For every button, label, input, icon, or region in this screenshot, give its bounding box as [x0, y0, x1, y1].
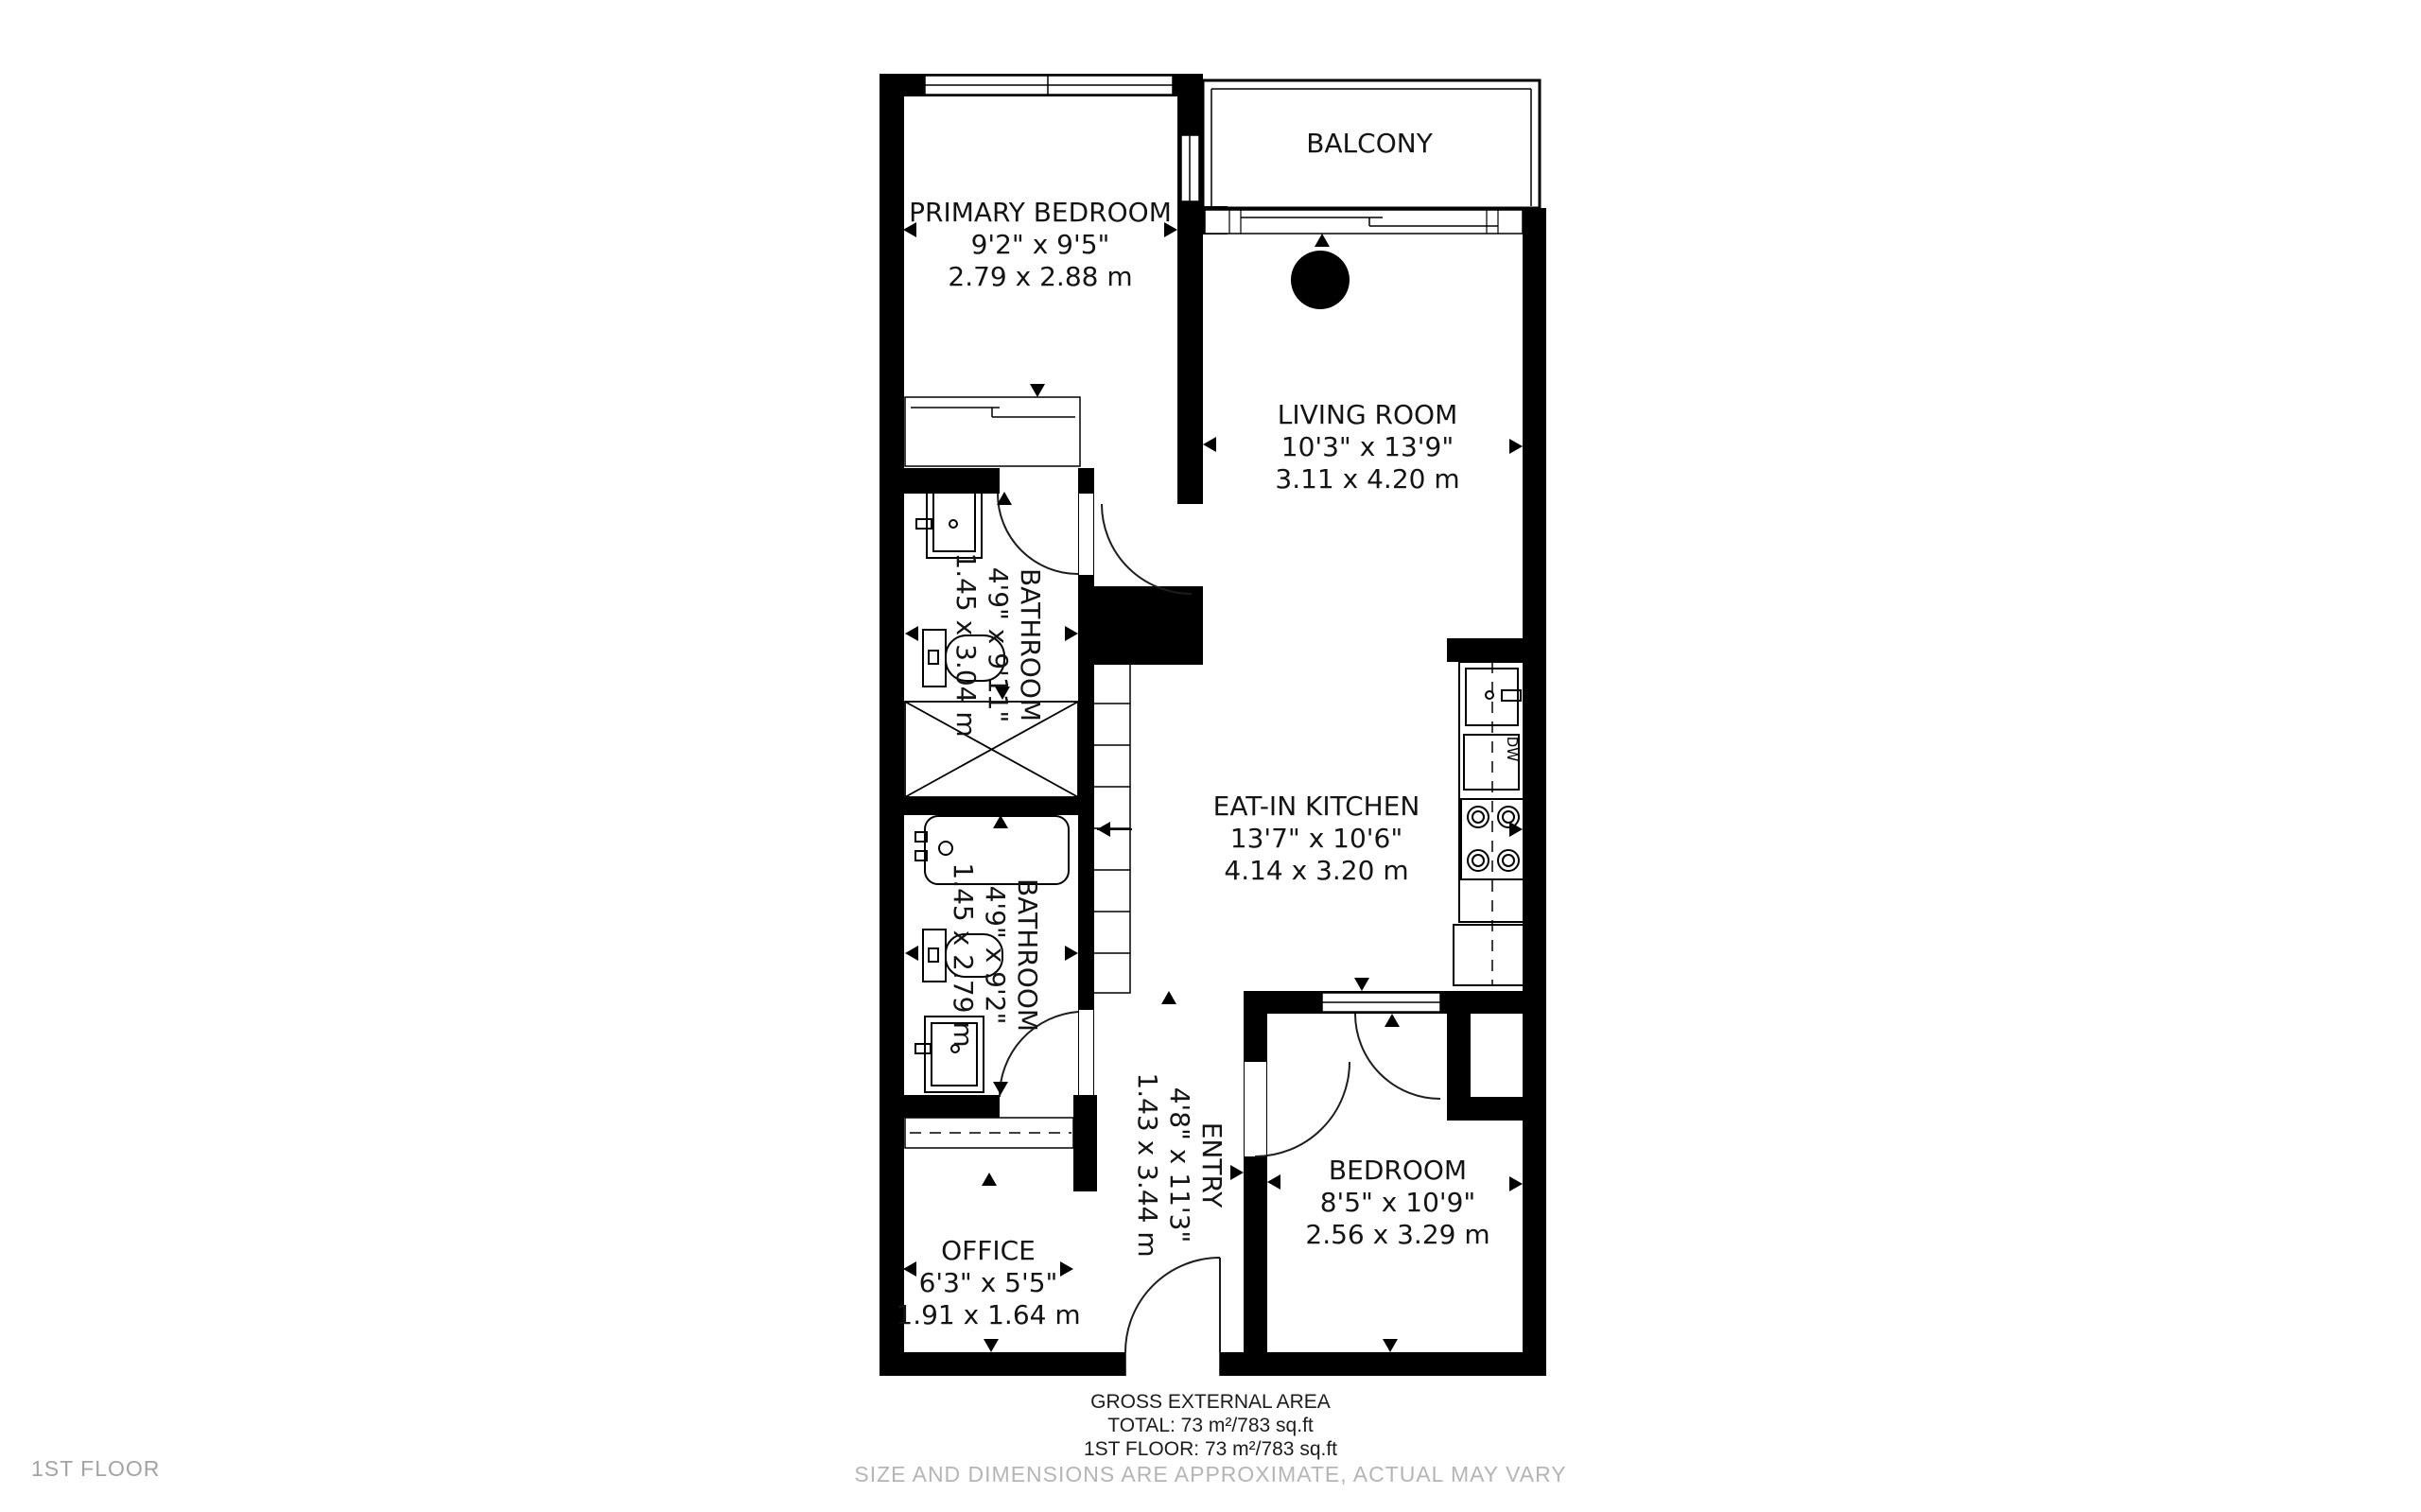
- primary-bedroom-window: [925, 76, 1173, 95]
- room-name: LIVING ROOM: [1275, 399, 1459, 431]
- kitchen-counter: [1454, 662, 1525, 986]
- room-dim-imperial: 13'7" x 10'6": [1213, 823, 1420, 855]
- room-label-entry: ENTRY 4'8" x 11'3" 1.43 x 3.44 m: [1131, 1072, 1228, 1257]
- room-dim-metric: 4.14 x 3.20 m: [1213, 855, 1420, 887]
- area-summary: GROSS EXTERNAL AREA TOTAL: 73 m²/783 sq.…: [854, 1390, 1566, 1488]
- column-icon: [1291, 251, 1350, 309]
- room-dim-imperial: 8'5" x 10'9": [1305, 1187, 1489, 1219]
- room-label-bathroom-1: BATHROOM 4'9" x 9'11" 1.45 x 3.04 m: [949, 552, 1046, 737]
- room-name: ENTRY: [1195, 1072, 1228, 1257]
- room-name: BALCONY: [1306, 128, 1433, 160]
- total-area-line: TOTAL: 73 m²/783 sq.ft: [854, 1414, 1566, 1437]
- primary-suite-door-arc: [1102, 504, 1192, 594]
- first-floor-area-line: 1ST FLOOR: 73 m²/783 sq.ft: [854, 1437, 1566, 1461]
- entry-door-arc: [1125, 1258, 1220, 1352]
- room-dim-metric: 1.91 x 1.64 m: [896, 1299, 1080, 1331]
- room-name: BATHROOM: [1011, 862, 1043, 1047]
- room-dim-metric: 1.45 x 3.04 m: [949, 552, 982, 737]
- room-dim-metric: 3.11 x 4.20 m: [1275, 463, 1459, 495]
- room-label-bathroom-2: BATHROOM 4'9" x 9'2" 1.45 x 2.79 m: [947, 862, 1043, 1047]
- room-dim-imperial: 10'3" x 13'9": [1275, 431, 1459, 463]
- fridge-icon: [1454, 925, 1525, 985]
- room-dim-imperial: 4'9" x 9'2": [979, 862, 1011, 1047]
- room-dim-imperial: 6'3" x 5'5": [896, 1267, 1080, 1299]
- size-disclaimer: SIZE AND DIMENSIONS ARE APPROXIMATE, ACT…: [854, 1461, 1566, 1488]
- room-name: BEDROOM: [1305, 1155, 1489, 1187]
- room-name: PRIMARY BEDROOM: [909, 197, 1172, 229]
- primary-closet-icon: [905, 397, 1080, 466]
- room-dim-metric: 1.45 x 2.79 m: [947, 862, 979, 1047]
- bedroom-window: [1322, 993, 1440, 1012]
- office-closet-icon: [905, 1118, 1073, 1148]
- room-label-balcony: BALCONY: [1306, 128, 1433, 160]
- bedroom-door-arc: [1255, 1062, 1350, 1156]
- floor-name-label: 1ST FLOOR: [31, 1456, 160, 1482]
- room-dim-metric: 2.56 x 3.29 m: [1305, 1219, 1489, 1251]
- room-label-primary-bedroom: PRIMARY BEDROOM 9'2" x 9'5" 2.79 x 2.88 …: [909, 197, 1172, 293]
- floorplan-page: DW: [0, 0, 2421, 1512]
- room-name: OFFICE: [896, 1235, 1080, 1267]
- living-room-side-window: [1181, 135, 1199, 201]
- room-name: EAT-IN KITCHEN: [1213, 791, 1420, 823]
- bathroom1-sink-icon: [916, 485, 982, 558]
- kitchen-sink-icon: [1466, 669, 1521, 725]
- floorplan-drawing: DW: [0, 0, 2421, 1512]
- shelves-icon: [1092, 662, 1130, 993]
- balcony-sliding-door: [1205, 210, 1523, 234]
- room-label-office: OFFICE 6'3" x 5'5" 1.91 x 1.64 m: [896, 1235, 1080, 1331]
- room-dim-imperial: 4'8" x 11'3": [1163, 1072, 1195, 1257]
- room-label-bedroom: BEDROOM 8'5" x 10'9" 2.56 x 3.29 m: [1305, 1155, 1489, 1251]
- room-dim-imperial: 9'2" x 9'5": [909, 229, 1172, 261]
- room-name: BATHROOM: [1014, 552, 1046, 737]
- room-dim-imperial: 4'9" x 9'11": [982, 552, 1014, 737]
- room-dim-metric: 2.79 x 2.88 m: [909, 261, 1172, 293]
- room-label-eat-in-kitchen: EAT-IN KITCHEN 13'7" x 10'6" 4.14 x 3.20…: [1213, 791, 1420, 887]
- room-label-living-room: LIVING ROOM 10'3" x 13'9" 3.11 x 4.20 m: [1275, 399, 1459, 495]
- gross-external-area-heading: GROSS EXTERNAL AREA: [854, 1390, 1566, 1414]
- dishwasher-label: DW: [1504, 737, 1521, 762]
- room-dim-metric: 1.43 x 3.44 m: [1131, 1072, 1163, 1257]
